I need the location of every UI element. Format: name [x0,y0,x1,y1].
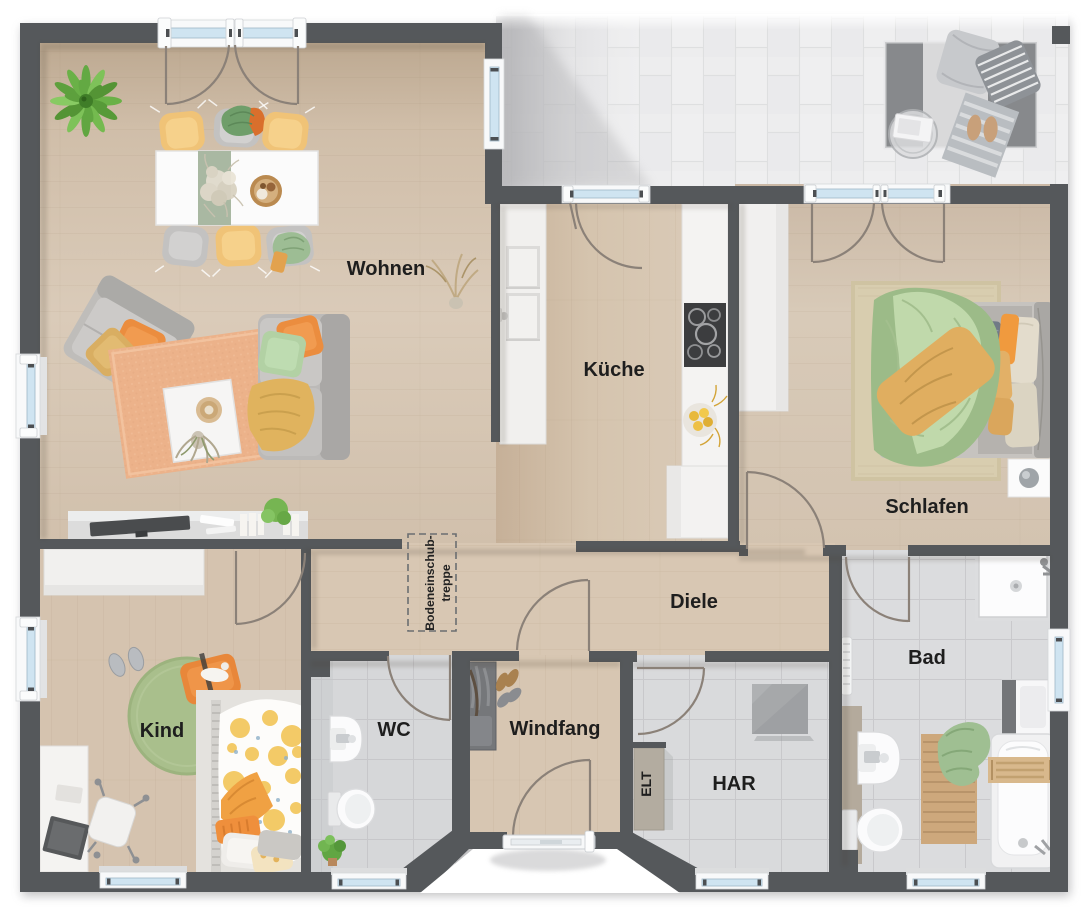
svg-text:Windfang: Windfang [510,718,601,740]
svg-text:WC: WC [377,719,410,741]
svg-text:Schlafen: Schlafen [885,496,968,518]
svg-text:Wohnen: Wohnen [347,258,426,280]
svg-text:ELT: ELT [638,771,654,797]
svg-text:Bodeneinschub-: Bodeneinschub- [423,535,437,630]
svg-text:Kind: Kind [140,720,184,742]
svg-text:Bad: Bad [908,647,946,669]
svg-text:HAR: HAR [712,773,756,795]
svg-text:Küche: Küche [583,359,644,381]
svg-text:Diele: Diele [670,591,718,613]
svg-text:treppe: treppe [439,564,453,601]
